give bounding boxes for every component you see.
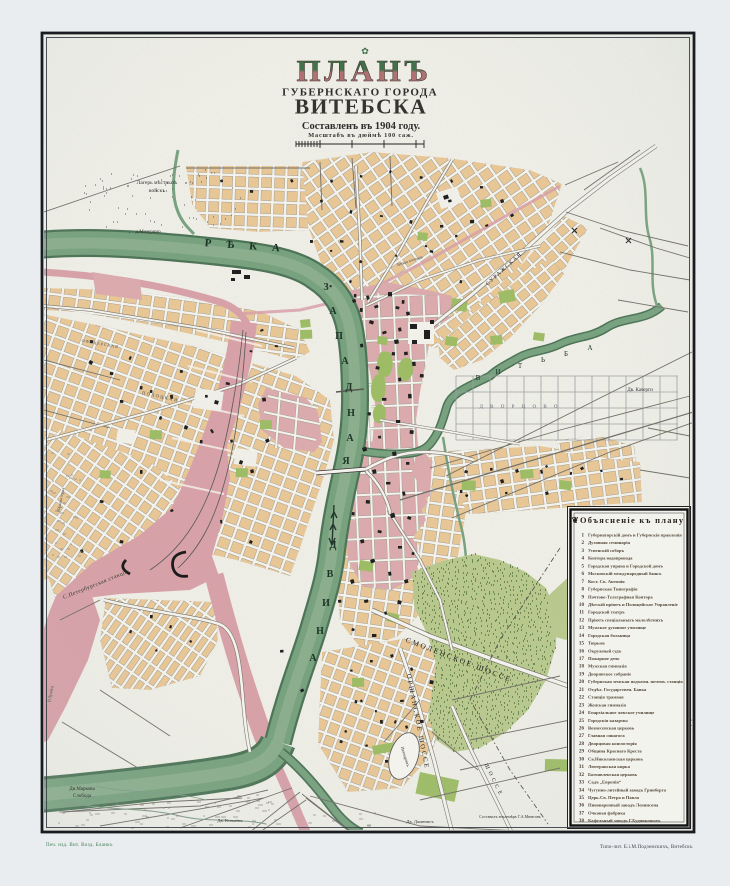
svg-text:Садъ „Европія“: Садъ „Европія“: [588, 780, 622, 785]
svg-text:28: 28: [579, 741, 585, 747]
svg-text:Очковая фабрика: Очковая фабрика: [588, 810, 626, 815]
svg-text:ВИТЕБСКА: ВИТЕБСКА: [295, 95, 427, 119]
svg-text:12: 12: [579, 617, 585, 623]
svg-text:33: 33: [579, 780, 585, 786]
svg-text:З: З: [323, 282, 328, 293]
svg-text:Церк.Св. Петра и Павла: Церк.Св. Петра и Павла: [588, 795, 640, 800]
svg-text:36: 36: [579, 803, 585, 809]
svg-text:Кафельный заводъ Г.Будниковыхъ: Кафельный заводъ Г.Будниковыхъ: [588, 818, 661, 823]
svg-text:17: 17: [579, 656, 585, 662]
svg-text:Женская гимназія: Женская гимназія: [588, 702, 626, 707]
svg-text:Вознесенская церковь: Вознесенская церковь: [588, 726, 635, 731]
svg-text:Община Краснаго Креста: Община Краснаго Креста: [588, 749, 642, 754]
svg-text:А: А: [346, 433, 354, 444]
svg-text:Епархіальное женское училище: Епархіальное женское училище: [588, 710, 654, 715]
svg-text:Городскія казармы: Городскія казармы: [588, 718, 628, 723]
svg-text:Богоявленская церковь: Богоявленская церковь: [588, 772, 638, 777]
svg-text:38: 38: [579, 818, 585, 824]
svg-text:Окружный судъ: Окружный судъ: [588, 648, 622, 653]
svg-text:Пріютъ спеціальныхъ малолѣтних: Пріютъ спеціальныхъ малолѣтнихъ: [588, 617, 663, 622]
svg-text:И: И: [495, 368, 500, 376]
svg-text:Типо-лит. Б.і.М.Подземскихъ, В: Типо-лит. Б.і.М.Подземскихъ, Витебскъ: [600, 845, 693, 850]
svg-text:29: 29: [579, 749, 585, 755]
svg-text:Губернская Типографія: Губернская Типографія: [588, 587, 638, 592]
svg-text:Городской театръ: Городской театръ: [588, 610, 625, 615]
svg-text:Дв. Джаннисъ: Дв. Джаннисъ: [406, 819, 434, 824]
svg-text:Городская больница: Городская больница: [588, 633, 631, 638]
svg-text:Дв.Маркова: Дв.Маркова: [69, 787, 95, 792]
svg-text:Пивоваренный заводъ Левинсона: Пивоваренный заводъ Левинсона: [588, 803, 659, 808]
svg-text:22: 22: [579, 695, 585, 701]
svg-text:25: 25: [579, 718, 585, 724]
svg-text:32: 32: [579, 772, 585, 778]
svg-text:В: В: [327, 569, 334, 580]
svg-text:Дв. Качерги: Дв. Качерги: [627, 388, 653, 393]
svg-text:А: А: [341, 356, 349, 367]
svg-text:Н: Н: [347, 408, 355, 419]
svg-text:И: И: [322, 598, 330, 609]
svg-text:37: 37: [579, 810, 585, 816]
svg-text:ПЛАНЪ: ПЛАНЪ: [297, 53, 432, 88]
svg-text:20: 20: [579, 679, 585, 685]
svg-text:Ь: Ь: [541, 356, 545, 364]
svg-text:30: 30: [579, 756, 585, 762]
svg-text:Св.Николаевская церковь: Св.Николаевская церковь: [588, 756, 643, 761]
svg-text:Успенскій соборъ: Успенскій соборъ: [588, 548, 624, 553]
svg-text:Губернаторскій домъ и Губернск: Губернаторскій домъ и Губернскія правлен…: [588, 533, 682, 538]
svg-text:Станція трамвая: Станція трамвая: [588, 695, 624, 700]
svg-text:войскъ: войскъ: [149, 187, 165, 194]
svg-text:26: 26: [579, 726, 585, 732]
svg-text:Д: Д: [330, 540, 337, 551]
svg-text:Дворянское собраніе: Дворянское собраніе: [588, 672, 631, 677]
svg-text:Я: Я: [342, 456, 350, 467]
svg-text:Т: Т: [518, 362, 523, 370]
svg-text:Мужская гимназія: Мужская гимназія: [588, 664, 627, 669]
svg-text:Д: Д: [346, 382, 353, 393]
svg-text:Главная синагога: Главная синагога: [588, 733, 625, 738]
svg-text:Слобода: Слобода: [73, 794, 92, 799]
svg-text:Кост. Св. Антонія: Кост. Св. Антонія: [588, 579, 625, 584]
svg-text:Духовная семинарія: Духовная семинарія: [588, 540, 631, 545]
svg-text:24: 24: [579, 710, 585, 716]
svg-text:Чугунно-литейный заводъ Гринбе: Чугунно-литейный заводъ Гринберга: [588, 787, 667, 792]
svg-text:Лагерь мѣстныхъ: Лагерь мѣстныхъ: [137, 179, 178, 186]
svg-text:15: 15: [579, 641, 585, 647]
svg-text:Мужское духовное училище: Мужское духовное училище: [588, 625, 646, 630]
svg-text:А: А: [587, 344, 592, 352]
svg-text:18: 18: [579, 664, 585, 670]
svg-text:11: 11: [579, 610, 584, 616]
svg-text:Губернская земская подъемн. по: Губернская земская подъемн. почтов. стан…: [588, 679, 683, 684]
svg-text:Составилъ землемѣръ Г.А.Мюнгов: Составилъ землемѣръ Г.А.Мюнговъ: [479, 814, 540, 819]
svg-text:А: А: [329, 306, 337, 317]
svg-text:Б: Б: [564, 350, 568, 358]
svg-text:13: 13: [579, 625, 585, 631]
svg-text:27: 27: [579, 733, 585, 739]
svg-text:д.Мазурино: д.Мазурино: [135, 230, 161, 235]
svg-text:31: 31: [579, 764, 585, 770]
svg-text:23: 23: [579, 702, 585, 708]
svg-text:Почтово-Телеграфная Контора: Почтово-Телеграфная Контора: [588, 594, 653, 599]
svg-text:П: П: [335, 331, 343, 342]
svg-text:Контора водопровода: Контора водопровода: [588, 556, 633, 561]
svg-text:Лютеранская кирка: Лютеранская кирка: [588, 764, 631, 769]
svg-text:34: 34: [579, 787, 585, 793]
svg-text:Городская управа и Городской: Городская управа и Городской домъ: [588, 563, 663, 568]
svg-text:10: 10: [579, 602, 585, 608]
svg-text:Составленъ въ 1904 году.: Составленъ въ 1904 году.: [302, 121, 421, 132]
svg-text:Д В О Р Ц О В О: Д В О Р Ц О В О: [479, 405, 560, 410]
svg-text:19: 19: [579, 672, 585, 678]
svg-text:В: В: [476, 374, 481, 382]
svg-text:21: 21: [579, 687, 585, 693]
svg-text:Дв. Всеслёвъ: Дв. Всеслёвъ: [217, 818, 243, 823]
svg-text:Печ. изд. Вит. Возд. Бланкъ: Печ. изд. Вит. Возд. Бланкъ: [46, 843, 113, 848]
svg-text:35: 35: [579, 795, 585, 801]
svg-text:14: 14: [579, 633, 585, 639]
svg-text:16: 16: [579, 648, 585, 654]
svg-text:Дворцовая консисторія: Дворцовая консисторія: [588, 741, 637, 746]
svg-text:Масштабъ въ дюймѣ 100 саж.: Масштабъ въ дюймѣ 100 саж.: [308, 132, 414, 139]
svg-text:А: А: [309, 653, 317, 664]
svg-text:Отдѣл. Государствен. Банка: Отдѣл. Государствен. Банка: [588, 687, 647, 692]
svg-text:Московскій международный банкъ: Московскій международный банкъ: [588, 571, 662, 576]
svg-text:Пожарное депо: Пожарное депо: [588, 656, 620, 661]
svg-text:Н: Н: [316, 626, 324, 637]
svg-text:Тюрьма: Тюрьма: [588, 641, 605, 646]
svg-text:❦Объясненіе къ плану: ❦Объясненіе къ плану: [572, 516, 685, 525]
svg-text:Дѣтскій пріютъ и Полицейское У: Дѣтскій пріютъ и Полицейское Управленіе: [588, 602, 678, 607]
